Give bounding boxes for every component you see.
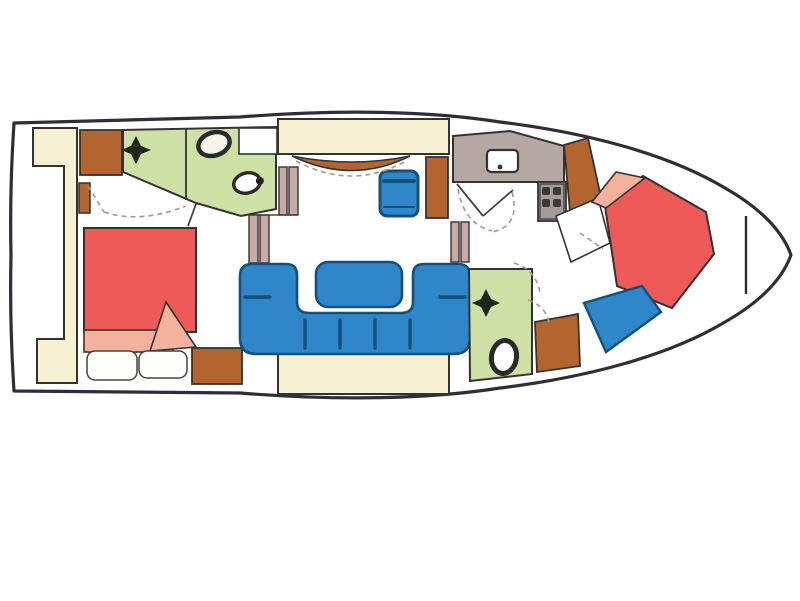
salon-pillar [461, 222, 469, 262]
fwd-head-toilet-icon: toilet-icon [489, 339, 518, 375]
salon-pillar [260, 215, 269, 263]
floorplan-svg: bow-bulkhead faucet-icon toilet-icon bas… [0, 0, 800, 601]
salon-pillar [249, 215, 258, 263]
fwd-cabin-cabinet [535, 314, 580, 372]
aft-cabin-wardrobe [80, 130, 122, 175]
aft-cabin-pillow-left [87, 351, 137, 380]
aft-cabin-pillow-right [139, 351, 187, 378]
salon-pillar [289, 167, 298, 215]
salon-table: table-icon [316, 262, 402, 307]
salon-cabinet-panel [426, 157, 448, 218]
floorplan-page: bow-bulkhead faucet-icon toilet-icon bas… [0, 0, 800, 601]
salon-pillar [279, 167, 287, 215]
salon-floor [278, 353, 449, 394]
salon-pillar [451, 222, 459, 262]
aft-head-locker [239, 128, 277, 154]
aft-cabin-bed [84, 228, 196, 332]
galley-sink-drain [498, 165, 503, 170]
galley-sink-icon: sink-icon [487, 150, 518, 172]
aft-cabin-nightstand [192, 348, 242, 384]
helm-seat: helm-seat-icon [380, 171, 418, 216]
companionway-deck [278, 119, 449, 154]
